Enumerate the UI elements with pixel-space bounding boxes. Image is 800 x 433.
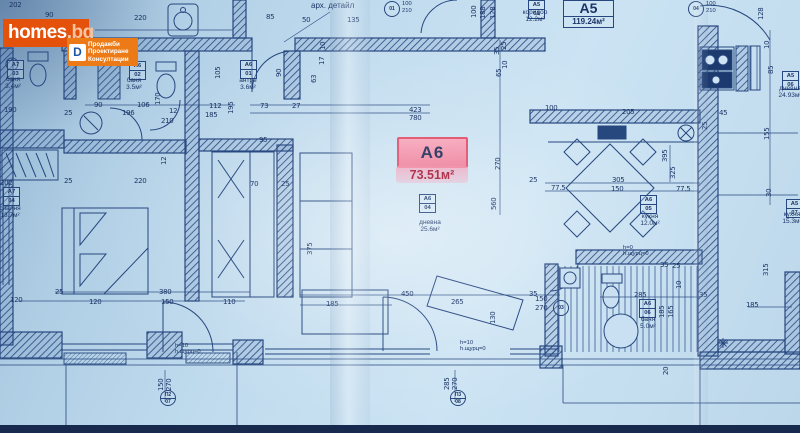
tagline-line: Проектиране (88, 48, 129, 56)
tagline-line: Продажби (88, 41, 129, 49)
living-wardrobe (300, 153, 352, 297)
unit-a5-area: 119.24м² (564, 17, 613, 27)
unit-a5-code: А5 (564, 1, 613, 17)
unit-a5-label: А5 119.24м² (563, 0, 614, 28)
tagline-line: Консултации (88, 56, 129, 64)
sink (168, 4, 198, 36)
blueprint-photo: 2029022085501351001881281281902590106196… (0, 0, 800, 433)
homes-logo-brand: homes (8, 22, 67, 44)
a5-kitchenette (700, 46, 760, 91)
closet (212, 152, 274, 297)
dining-table (564, 139, 656, 237)
highlighted-unit-code: А6 (421, 143, 445, 163)
table-edge (0, 425, 800, 433)
bed (62, 208, 148, 294)
ac-symbol (718, 338, 728, 348)
highlighted-unit-area: 73.51м² (396, 166, 468, 183)
agency-tagline: D Продажби Проектиране Консултации (67, 38, 138, 66)
agency-emblem-icon: D (69, 44, 86, 61)
kitchen-counter (548, 125, 698, 142)
highlighted-unit-box: А6 (397, 137, 468, 168)
sofa (427, 276, 523, 330)
ceiling-lamp (80, 112, 102, 134)
